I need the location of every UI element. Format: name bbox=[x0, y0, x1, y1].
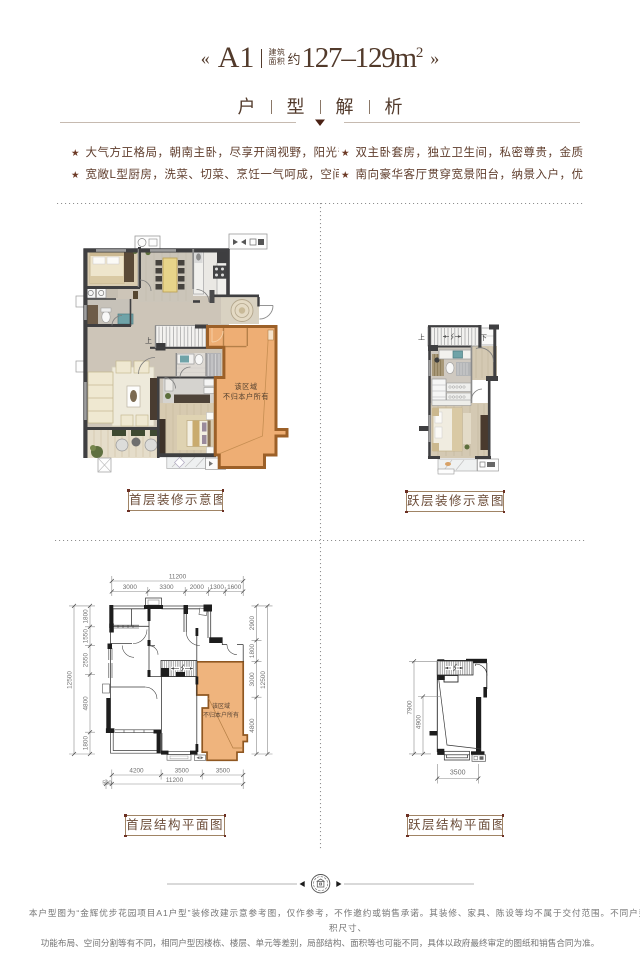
svg-text:下: 下 bbox=[480, 334, 487, 342]
svg-text:4800: 4800 bbox=[83, 696, 90, 711]
svg-text:3000: 3000 bbox=[249, 672, 256, 687]
svg-text:4200: 4200 bbox=[129, 768, 144, 775]
svg-text:上: 上 bbox=[145, 336, 152, 345]
svg-text:1800: 1800 bbox=[83, 736, 90, 751]
svg-text:1300: 1300 bbox=[210, 584, 225, 591]
svg-text:上: 上 bbox=[418, 333, 425, 342]
svg-text:7900: 7900 bbox=[407, 700, 414, 715]
svg-text:500: 500 bbox=[102, 781, 111, 787]
svg-text:3500: 3500 bbox=[175, 768, 190, 775]
svg-text:4800: 4800 bbox=[249, 718, 256, 733]
svg-text:2900: 2900 bbox=[249, 616, 256, 631]
svg-text:1800: 1800 bbox=[83, 609, 90, 624]
svg-text:不归本户所有: 不归本户所有 bbox=[223, 392, 269, 401]
svg-text:3300: 3300 bbox=[159, 584, 174, 591]
svg-text:2550: 2550 bbox=[83, 653, 90, 668]
svg-text:3500: 3500 bbox=[450, 770, 466, 777]
svg-text:11200: 11200 bbox=[169, 574, 187, 581]
svg-text:12500: 12500 bbox=[67, 671, 74, 689]
svg-text:1600: 1600 bbox=[227, 584, 242, 591]
svg-text:该区域: 该区域 bbox=[234, 382, 257, 391]
svg-text:1800: 1800 bbox=[249, 643, 256, 658]
svg-text:3500: 3500 bbox=[216, 768, 231, 775]
svg-text:12500: 12500 bbox=[260, 671, 267, 689]
svg-text:2000: 2000 bbox=[190, 584, 205, 591]
svg-text:11200: 11200 bbox=[166, 777, 184, 784]
svg-text:4900: 4900 bbox=[416, 714, 423, 729]
svg-text:3000: 3000 bbox=[123, 584, 138, 591]
svg-text:该区域: 该区域 bbox=[212, 702, 230, 710]
svg-text:不归本户所有: 不归本户所有 bbox=[203, 711, 239, 719]
svg-text:1550: 1550 bbox=[83, 629, 90, 644]
